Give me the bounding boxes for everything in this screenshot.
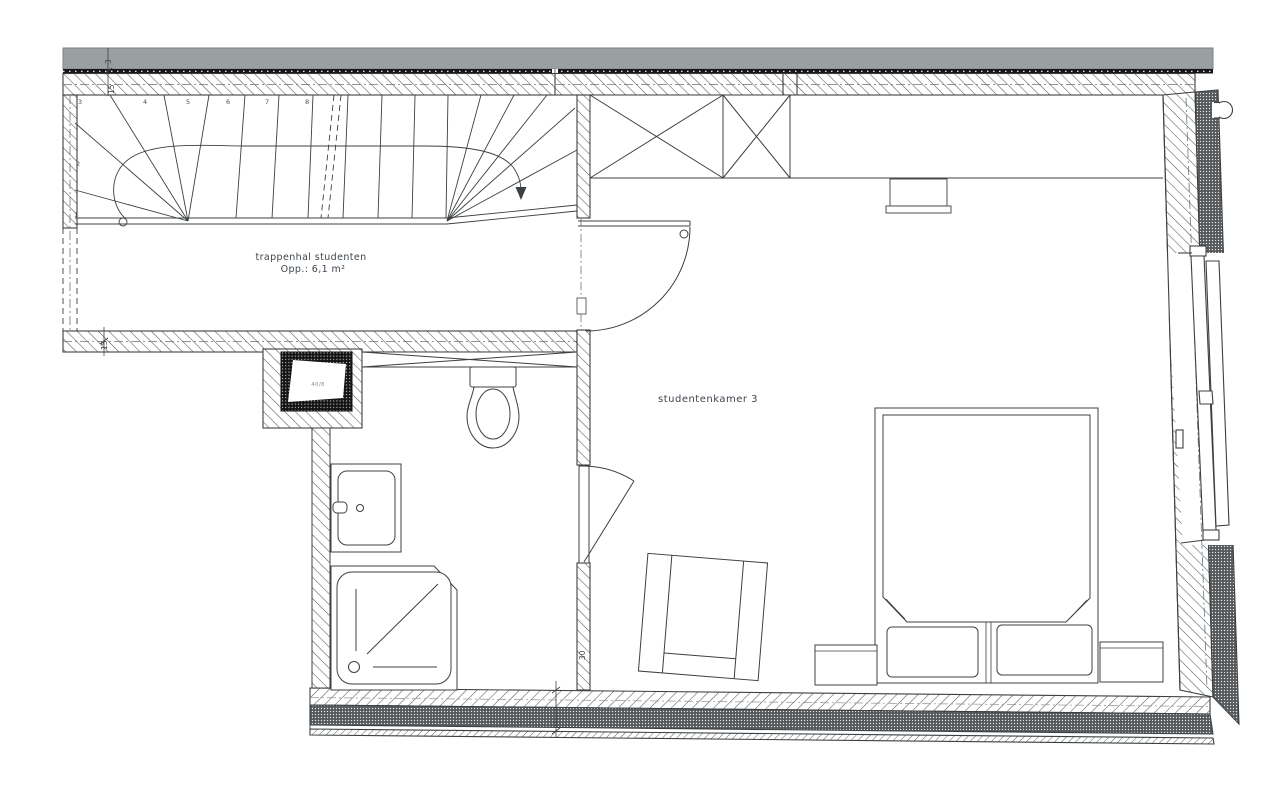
tread-number-6: 6 — [226, 98, 230, 106]
tread-number-7: 7 — [265, 98, 269, 106]
toilet — [467, 367, 519, 448]
dim-top-a: 3 — [104, 59, 113, 64]
partition-wall — [577, 95, 590, 690]
floor-plan-drawing: 1 2 3 4 5 6 7 8 trappenhal studenten Opp… — [0, 0, 1280, 797]
stair-hall-area: Opp.: 6,1 m² — [281, 264, 346, 275]
sink — [331, 464, 401, 552]
tread-number-5: 5 — [186, 98, 190, 106]
desk — [790, 178, 1163, 213]
bathroom-shelf — [362, 352, 577, 367]
tread-number-3: 3 — [78, 98, 82, 106]
stair-hall-labels: trappenhal studenten Opp.: 6,1 m² — [255, 252, 366, 275]
nightstand-left — [815, 645, 877, 685]
bathroom-left-wall — [312, 428, 330, 688]
stair-hall-name: trappenhal studenten — [255, 252, 366, 263]
student-room-name: studentenkamer 3 — [658, 394, 758, 405]
armchair — [638, 553, 767, 680]
flue-size-label: 40/8 — [311, 382, 325, 388]
tread-number-4: 4 — [143, 98, 147, 106]
dim-hall-bottom: 15 — [100, 340, 109, 350]
tread-number-1: 1 — [74, 211, 78, 219]
top-wall — [63, 74, 1195, 96]
closet — [590, 95, 790, 178]
tread-number-8: 8 — [305, 98, 309, 106]
pillow-left — [887, 627, 978, 677]
nightstand-right — [1100, 642, 1163, 682]
right-wall — [1163, 90, 1246, 724]
tread-number-2: 2 — [76, 160, 80, 168]
student-room: studentenkamer 3 — [590, 95, 1163, 685]
dim-top-b: 15 — [107, 84, 116, 94]
pillow-right — [997, 625, 1092, 675]
doors — [577, 218, 690, 563]
dim-bath-wall: 30 — [578, 650, 587, 660]
bathroom-door — [579, 466, 634, 563]
staircase — [75, 95, 577, 224]
facade-band — [63, 48, 1213, 74]
drain-pipe-icon — [1212, 102, 1233, 119]
floor-plan-page: 1 2 3 4 5 6 7 8 trappenhal studenten Opp… — [0, 0, 1280, 797]
shower — [331, 566, 457, 690]
bed — [875, 408, 1098, 683]
entry-door — [577, 218, 690, 331]
chimney: 40/8 — [263, 349, 362, 428]
